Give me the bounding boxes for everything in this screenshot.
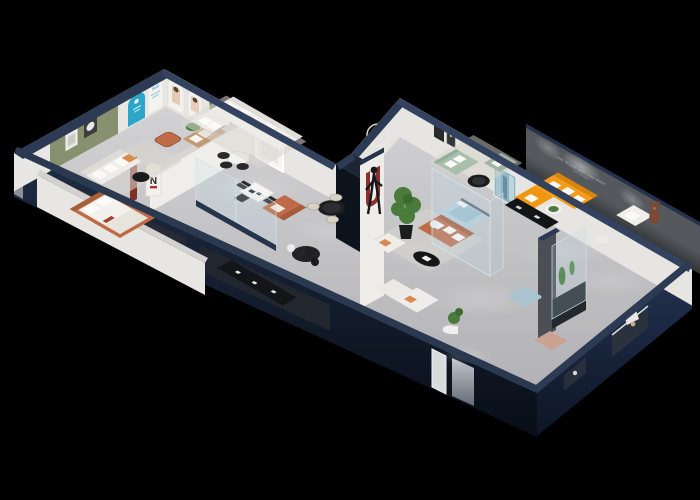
plant-pot: [399, 225, 413, 239]
teddy-body: [649, 210, 659, 224]
foliage-shadow: [403, 194, 413, 204]
art-streak: [509, 175, 514, 203]
foliage: [455, 308, 463, 316]
glass-pane-side: [490, 193, 503, 276]
foliage: [399, 208, 415, 224]
white-stool: [287, 244, 295, 252]
render-stage: 888: [0, 0, 700, 500]
window-decor-glimpse: [573, 371, 577, 375]
white-pot: [450, 326, 458, 334]
showroom-cutaway-render: 888: [0, 0, 700, 500]
window-chair-glimpse: [631, 322, 636, 327]
art-streak: [503, 175, 507, 199]
teddy-muzzle: [653, 207, 656, 210]
teddy-bear: [649, 201, 660, 224]
logo-red-mark: [150, 186, 157, 188]
sculpture-head: [371, 167, 378, 174]
dark-oval-rug: [292, 246, 320, 262]
